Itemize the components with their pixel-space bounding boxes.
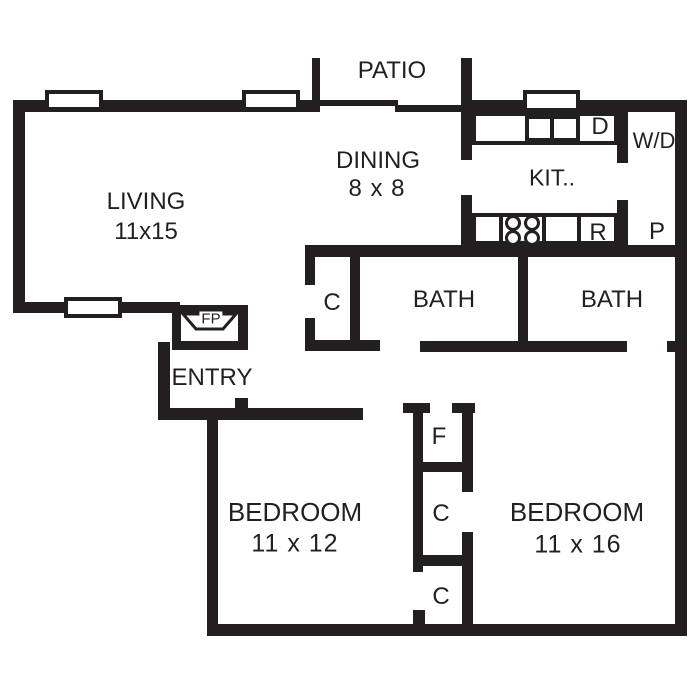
room-label-bath-right: BATH	[581, 288, 643, 312]
window	[242, 90, 300, 111]
wall-dining-kitchen-upper	[461, 58, 472, 160]
wall-furnace-cap-right	[452, 403, 475, 413]
sink-divider	[550, 115, 554, 142]
entry-door-jamb	[235, 398, 248, 408]
stove-burner	[505, 215, 521, 231]
wall-baths-bottom	[420, 341, 627, 352]
window	[523, 90, 580, 112]
fixture-label-closet-middle: C	[432, 502, 449, 526]
room-dims-dining: 8 x 8	[348, 177, 405, 201]
room-dims-bedroom-right: 11 x 16	[534, 533, 621, 558]
fixture-label-washer-dryer: W/D	[633, 130, 676, 152]
stove-burner	[524, 215, 540, 231]
wall-right-notch	[667, 341, 675, 352]
room-label-kitchen: KIT..	[529, 167, 575, 190]
wall-outer-bottom	[207, 624, 687, 636]
fixture-label-pantry: P	[649, 220, 665, 244]
patio-door-panel-a	[318, 100, 398, 106]
room-dims-living: 11x15	[114, 220, 178, 244]
wall-closet-column-left	[413, 403, 423, 572]
wall-bath-divider	[518, 257, 528, 352]
counter-divider	[577, 213, 581, 245]
fixture-label-range: R	[589, 221, 606, 245]
stove-burner	[524, 230, 540, 246]
room-label-patio: PATIO	[358, 59, 426, 83]
wall-closet-lower-stub	[413, 610, 425, 624]
wall-furnace-right	[462, 413, 473, 492]
patio-door-panel-b	[395, 105, 463, 112]
room-label-dining: DINING	[336, 149, 420, 173]
fixture-label-furnace: F	[432, 425, 447, 449]
wall-kitchen-bottom	[305, 245, 686, 257]
wall-hall-closet-right	[350, 257, 360, 350]
room-label-living: LIVING	[107, 190, 186, 214]
window	[45, 90, 103, 111]
stove-burner	[505, 230, 521, 246]
wall-hall-closet-bottom	[305, 340, 380, 351]
wall-outer-right	[675, 100, 687, 636]
fixture-label-fireplace: FP	[199, 312, 222, 327]
room-label-bath-left: BATH	[413, 288, 475, 312]
fixture-label-closet-hall: C	[323, 291, 340, 315]
room-label-entry: ENTRY	[172, 366, 253, 390]
wall-entry-bottom	[158, 408, 363, 420]
floor-plan: PATIO LIVING 11x15 DINING 8 x 8 KIT.. D …	[0, 0, 697, 697]
room-label-bedroom-left: BEDROOM	[228, 499, 362, 525]
wall-wd-divider-upper	[617, 107, 628, 163]
fixture-label-closet-lower: C	[432, 585, 449, 609]
wall-bedroom1-left	[207, 408, 218, 636]
window	[64, 297, 122, 318]
room-label-bedroom-right: BEDROOM	[510, 499, 644, 525]
wall-closet-column-right-lower	[462, 532, 473, 624]
fixture-label-dishwasher: D	[591, 115, 608, 139]
wall-hall-closet-left-upper	[305, 257, 315, 285]
wall-furnace-closet-divider	[423, 462, 462, 472]
wall-living-left	[13, 100, 25, 313]
room-dims-bedroom-left: 11 x 12	[251, 532, 338, 557]
